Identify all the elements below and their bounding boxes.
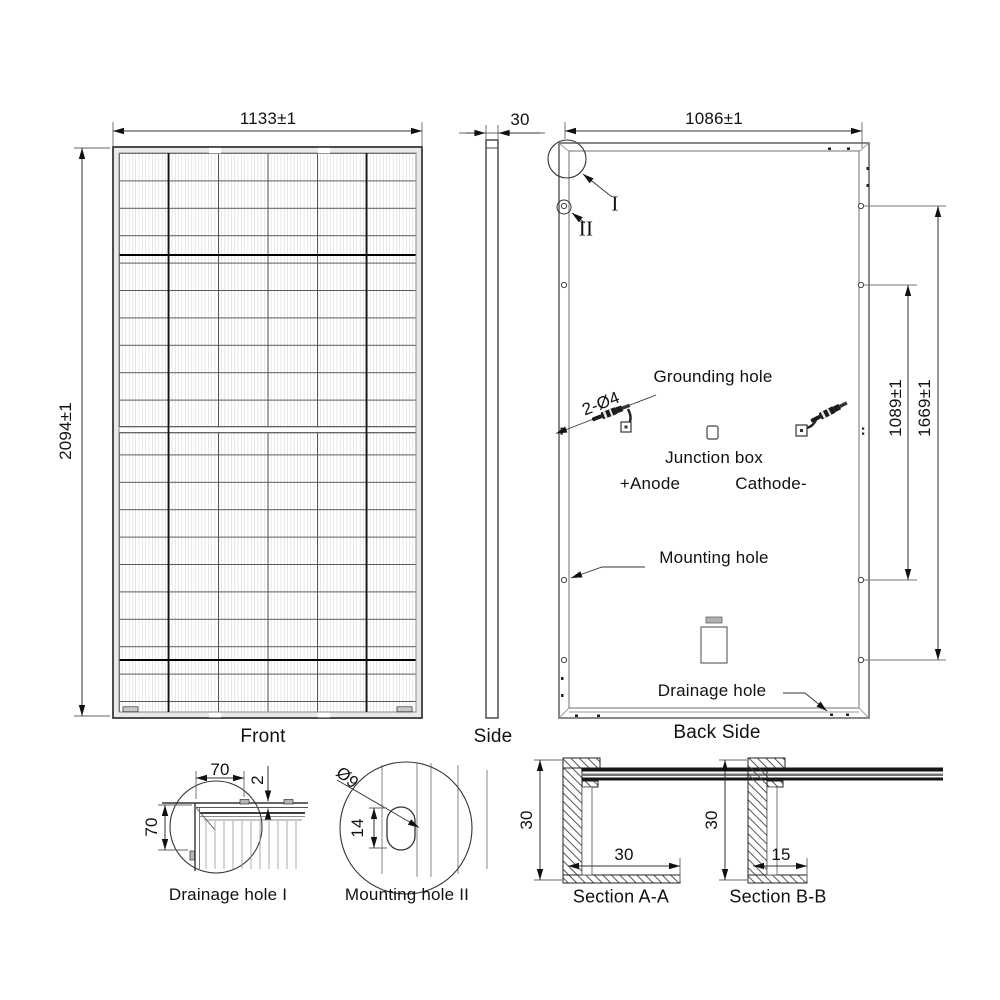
mounting-hole-label: Mounting hole [659, 548, 768, 568]
drawing-linework [0, 0, 1000, 1000]
back-width-dim-label: 1086±1 [685, 109, 743, 129]
detail-drainage-drawing [162, 781, 308, 873]
detail-mounting-caption: Mounting hole II [345, 885, 469, 905]
section-bb-flange-dim-label: 15 [771, 845, 790, 865]
back-view-caption: Back Side [673, 722, 760, 744]
mounting-length-dim-label: 14 [348, 818, 368, 837]
drainage-step-dim-label: 2 [248, 775, 268, 785]
detail-mounting-dimensions [369, 808, 387, 848]
front-width-dim-label: 1133±1 [240, 109, 297, 129]
detail-ii-ref-label: II [579, 217, 593, 242]
front-height-dim-label: 2094±1 [56, 402, 76, 460]
section-aa-height-dim-label: 30 [517, 810, 537, 829]
junction-box-label: Junction box [665, 448, 763, 468]
anode-label: +Anode [620, 474, 680, 494]
section-aa-flange-dim-label: 30 [614, 845, 633, 865]
drainage-hole-label: Drainage hole [658, 681, 766, 701]
technical-drawing-sheet: 1133±1 2094±1 Front 30 Side 1086±1 I II … [0, 0, 1000, 1000]
detail-drainage-caption: Drainage hole I [169, 885, 287, 905]
section-bb-height-dim-label: 30 [702, 810, 722, 829]
front-height-dimension [74, 148, 110, 716]
outer-span-dim-label: 1669±1 [915, 379, 935, 437]
side-view-caption: Side [474, 726, 513, 748]
side-thickness-dim-label: 30 [510, 110, 529, 130]
front-view-caption: Front [240, 726, 285, 748]
junction-box-symbol [707, 426, 718, 439]
cathode-label: Cathode- [735, 474, 807, 494]
grounding-hole-label: Grounding hole [653, 367, 772, 387]
side-view-drawing [486, 140, 498, 718]
inner-span-dim-label: 1089±1 [886, 379, 906, 437]
section-aa-caption: Section A-A [573, 887, 669, 908]
back-view-drawing [548, 140, 869, 718]
front-view-drawing [113, 147, 422, 718]
section-bb-caption: Section B-B [729, 887, 826, 908]
drainage-height-dim-label: 70 [142, 817, 162, 836]
side-thickness-dimension [459, 125, 545, 140]
detail-i-ref-label: I [611, 192, 618, 217]
drainage-width-dim-label: 70 [210, 760, 229, 780]
